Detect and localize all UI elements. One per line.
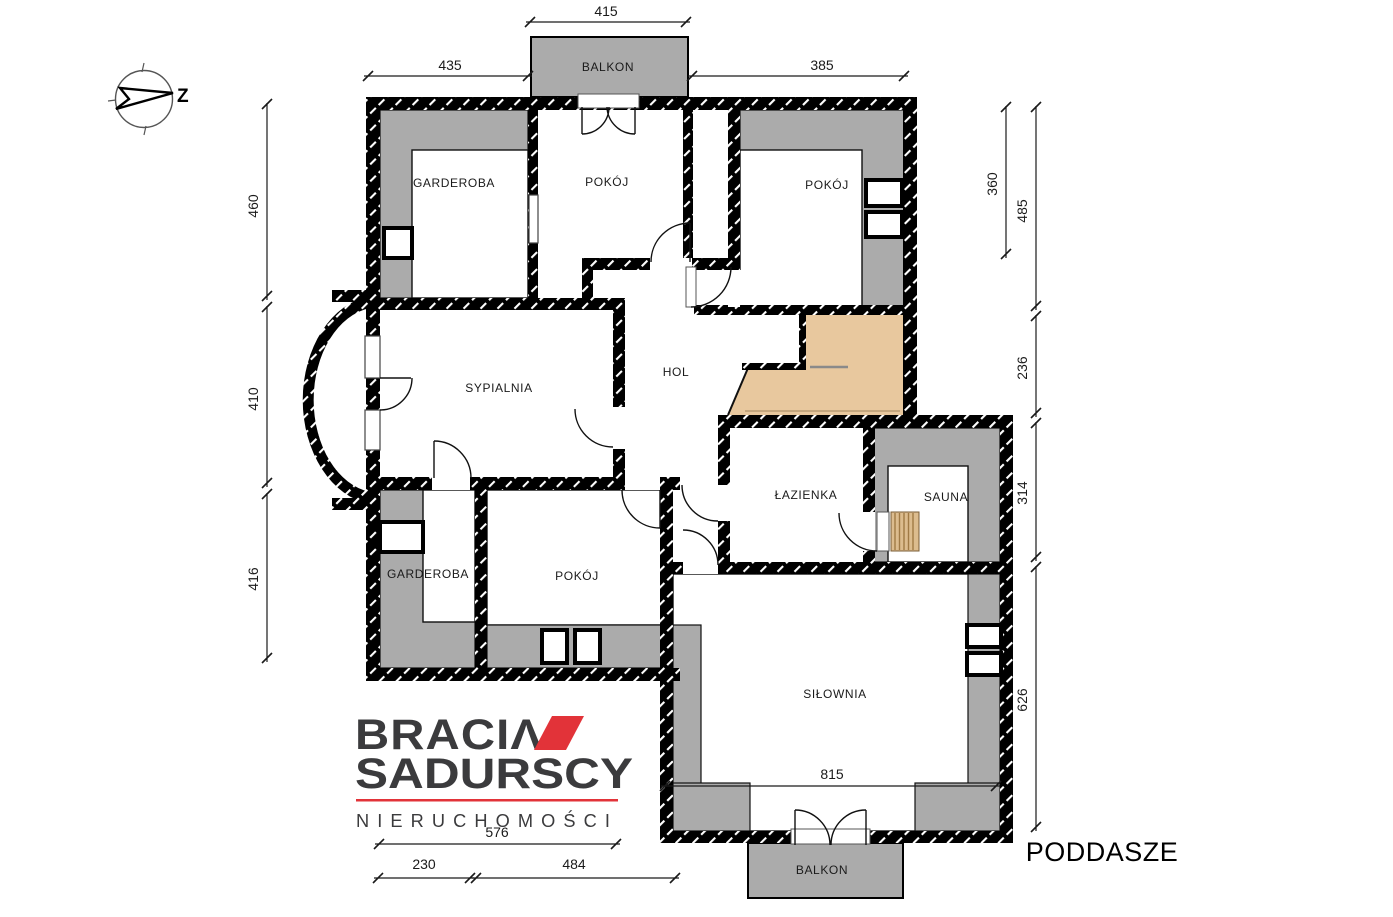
dim-top-left: 435 — [363, 57, 533, 81]
dim-bottom-right: 484 — [471, 856, 680, 883]
wall-hol-stub — [582, 258, 593, 310]
label-garderoba-top: GARDEROBA — [413, 176, 495, 190]
dim-bottom-left: 230 — [373, 856, 475, 883]
dim-left-upper: 460 — [245, 99, 272, 301]
window-silownia-2 — [967, 653, 1001, 675]
svg-text:230: 230 — [412, 856, 436, 872]
logo: BRACIΛ SADURSCY NIERUCHOMOŚCI — [355, 711, 633, 831]
garderoba-bottom-floor — [423, 490, 475, 622]
logo-line3: NIERUCHOMOŚCI — [356, 810, 618, 831]
wall-right-upper — [903, 97, 917, 428]
wall-lazienka-top — [718, 415, 1013, 428]
garderoba-top-floor — [412, 150, 528, 298]
bay-window-2 — [365, 410, 380, 450]
label-pokoj-right: POKÓJ — [805, 177, 849, 192]
compass-arrow — [116, 88, 173, 109]
compass-label: Z — [177, 86, 189, 107]
label-sypialnia: SYPIALNIA — [465, 381, 532, 395]
label-lazienka: ŁAZIENKA — [775, 488, 838, 502]
label-pokoj-bottom: POKÓJ — [555, 568, 599, 583]
dim-right-mid2: 314 — [1014, 418, 1041, 562]
svg-text:815: 815 — [820, 766, 844, 782]
label-garderoba-bottom: GARDEROBA — [387, 567, 469, 581]
compass: Z — [108, 63, 189, 135]
floor-title: PODDASZE — [1026, 837, 1179, 867]
window-pokoj-right-2 — [866, 212, 902, 237]
window-garderoba-top — [384, 228, 412, 258]
label-balkon-top: BALKON — [582, 60, 634, 74]
dim-top-balcony: 415 — [525, 3, 691, 27]
label-sauna: SAUNA — [924, 490, 968, 504]
dim-right-lower: 626 — [1014, 562, 1041, 832]
svg-text:410: 410 — [245, 387, 261, 411]
floorplan-page: BRACIA SADURSCY — [0, 0, 1393, 917]
wall-sypialnia-hol — [613, 298, 625, 477]
wall-bay-arc — [303, 296, 370, 504]
wall-stairs-mid — [742, 363, 806, 370]
floorplan-svg: BRACIA SADURSCY — [0, 0, 1393, 917]
roof-window-pokoj-bottom-2 — [575, 630, 600, 663]
wall-left — [366, 97, 380, 681]
svg-text:415: 415 — [594, 3, 618, 19]
wall-pokoj-center-right — [683, 97, 693, 270]
label-pokoj-top: POKÓJ — [585, 174, 629, 189]
dim-right-mid1: 236 — [1014, 311, 1041, 418]
svg-text:485: 485 — [1014, 199, 1030, 223]
wall-garderoba-pokoj-bottom — [475, 490, 487, 668]
svg-text:460: 460 — [245, 194, 261, 218]
hol-corridor — [673, 415, 718, 574]
dim-right-upper: 485 — [1014, 102, 1041, 311]
label-balkon-bottom: BALKON — [796, 863, 848, 877]
svg-text:236: 236 — [1014, 356, 1030, 380]
balcony-door-sill-top — [578, 94, 639, 108]
bay-window-1 — [365, 336, 380, 378]
wall-pokoj-right-bottom — [694, 305, 917, 315]
svg-text:435: 435 — [438, 57, 462, 73]
window-silownia-1 — [967, 625, 1001, 647]
label-hol: HOL — [663, 365, 689, 379]
svg-text:416: 416 — [245, 567, 261, 591]
wall-stairs-left — [799, 315, 806, 370]
svg-text:314: 314 — [1014, 481, 1030, 505]
label-silownia: SIŁOWNIA — [803, 687, 866, 701]
pokoj-top-floor — [538, 110, 683, 270]
interior-opening-garderoba — [529, 195, 538, 243]
logo-line2: SADURSCY — [355, 750, 633, 798]
pokoj-bottom-floor — [487, 490, 667, 625]
logo-divider — [356, 799, 618, 802]
svg-text:484: 484 — [562, 856, 586, 872]
dim-left-lower: 416 — [245, 489, 272, 663]
svg-text:626: 626 — [1014, 688, 1030, 712]
svg-text:360: 360 — [984, 172, 1000, 196]
window-pokoj-right-1 — [866, 180, 902, 206]
svg-text:385: 385 — [810, 57, 834, 73]
window-garderoba-bottom — [380, 522, 423, 552]
dim-right-inner: 360 — [984, 102, 1011, 259]
wall-bottom-left-block — [366, 668, 680, 681]
dim-top-right: 385 — [687, 57, 909, 81]
wall-top — [366, 97, 917, 110]
sauna-bench — [891, 512, 919, 551]
dim-left-middle: 410 — [245, 302, 272, 488]
roof-window-pokoj-bottom-1 — [542, 630, 567, 663]
